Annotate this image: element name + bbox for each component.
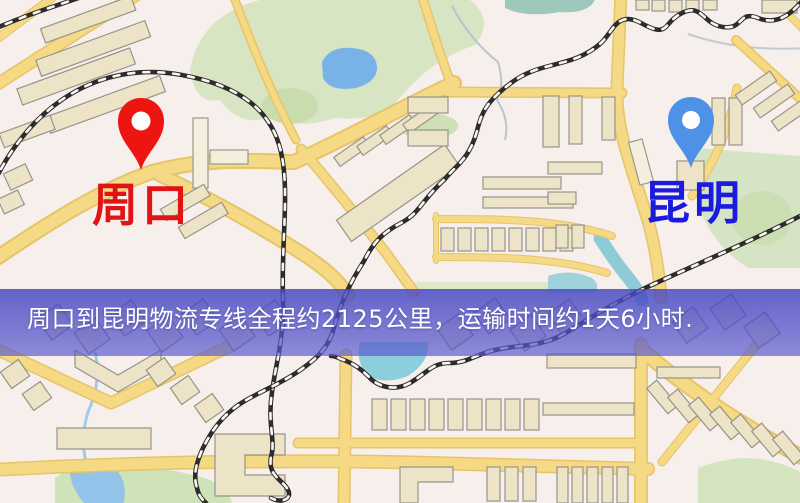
- logistics-route-map: 周口 昆明 周口到昆明物流专线全程约2125公里，运输时间约1天6小时.: [0, 0, 800, 503]
- route-info-text: 周口到昆明物流专线全程约2125公里，运输时间约1天6小时.: [0, 307, 693, 331]
- origin-label: 周口: [92, 178, 192, 232]
- route-info-banner: 周口到昆明物流专线全程约2125公里，运输时间约1天6小时.: [0, 289, 800, 356]
- destination-label: 昆明: [644, 176, 744, 230]
- map-canvas[interactable]: 周口 昆明: [0, 0, 800, 503]
